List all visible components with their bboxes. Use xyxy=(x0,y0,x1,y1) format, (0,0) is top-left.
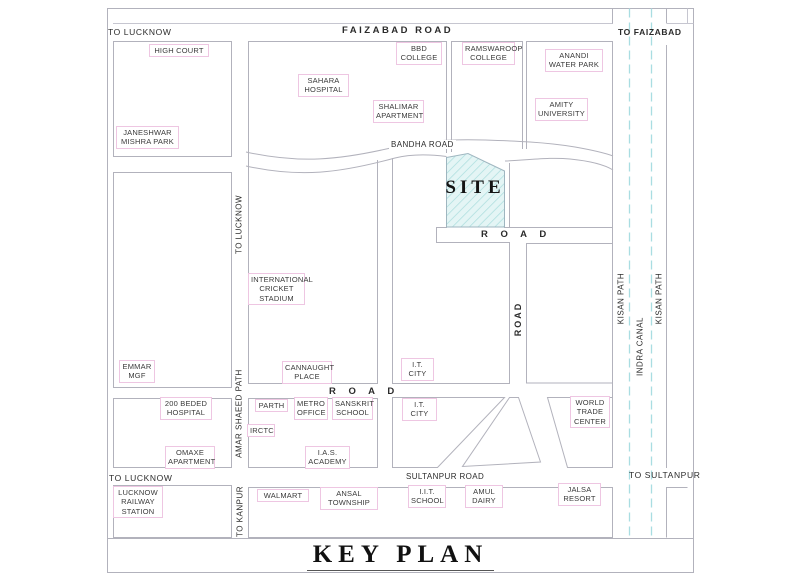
road-label-to-faizabad: TO FAIZABAD xyxy=(618,27,682,37)
road-label-indra-canal: INDRA CANAL xyxy=(636,287,645,407)
block-east xyxy=(527,244,613,384)
road-label-bandha-road: BANDHA ROAD xyxy=(389,140,456,149)
road-label-to-lucknow-vertical: TO LUCKNOW xyxy=(235,165,244,285)
label-cannaught-place: CANNAUGHT PLACE xyxy=(282,361,332,384)
page-title: KEY PLAN xyxy=(307,541,495,571)
label-world-trade-center: WORLD TRADE CENTER xyxy=(570,396,610,428)
label-sanskrit-school: SANSKRIT SCHOOL xyxy=(332,397,373,420)
label-irctc: IRCTC xyxy=(247,424,275,437)
label-ansal-township: ANSAL TOWNSHIP xyxy=(320,487,378,510)
faizabad-road-edge xyxy=(113,9,694,24)
label-jalsa-resort: JALSA RESORT xyxy=(558,483,601,506)
road-label-kisan-path-west: KISAN PATH xyxy=(617,239,626,359)
label-omaxe-apartment: OMAXE APARTMENT xyxy=(165,446,215,469)
block-cricket-stadium xyxy=(249,160,378,384)
block-emmar xyxy=(114,173,232,388)
label-international-cricket-stadium: INTERNATIONAL CRICKET STADIUM xyxy=(248,273,305,305)
site-label: SITE xyxy=(444,177,506,199)
kisan-path-east-edge xyxy=(667,9,688,538)
label-sahara-hospital: SAHARA HOSPITAL xyxy=(298,74,349,97)
label-shalimar-apartment: SHALIMAR APARTMENT xyxy=(373,100,424,123)
label-ramswaroop-college: RAMSWAROOP COLLEGE xyxy=(462,42,515,65)
road-label-sultanpur-road: SULTANPUR ROAD xyxy=(406,472,484,481)
label-janeshwar-mishra-park: JANESHWAR MISHRA PARK xyxy=(116,126,179,149)
label-parth: PARTH xyxy=(255,399,288,412)
road-label-road-vertical: ROAD xyxy=(513,259,523,379)
label-emmar-mgf: EMMAR MGF xyxy=(119,360,155,383)
road-label-kisan-path-east: KISAN PATH xyxy=(655,239,664,359)
label-amity-university: AMITY UNIVERSITY xyxy=(535,98,588,121)
road-label-road-mid: R O A D xyxy=(329,386,399,397)
road-label-faizabad-road: FAIZABAD ROAD xyxy=(342,25,453,36)
label-ias-academy: I.A.S. ACADEMY xyxy=(305,446,350,469)
label-walmart: WALMART xyxy=(257,489,309,502)
label-bbd-college: BBD COLLEGE xyxy=(396,42,442,65)
block-east-of-site xyxy=(504,163,613,228)
label-it-city-lower: I.T. CITY xyxy=(402,398,437,421)
label-high-court: HIGH COURT xyxy=(149,44,209,57)
label-it-city-upper: I.T. CITY xyxy=(401,358,434,381)
label-200-beded-hospital: 200 BEDED HOSPITAL xyxy=(160,397,212,420)
road-label-road-site: R O A D xyxy=(481,229,551,240)
road-label-to-sultanpur: TO SULTANPUR xyxy=(629,470,700,480)
label-iit-school: I.I.T. SCHOOL xyxy=(408,485,446,508)
label-lucknow-railway-station: LUCKNOW RAILWAY STATION xyxy=(113,486,163,518)
road-label-to-lucknow-top: TO LUCKNOW xyxy=(108,27,171,37)
label-anandi-water-park: ANANDI WATER PARK xyxy=(545,49,603,72)
title-bar: KEY PLAN xyxy=(107,538,694,573)
label-metro-office: METRO OFFICE xyxy=(294,397,328,420)
key-plan-map: TO LUCKNOW FAIZABAD ROAD TO FAIZABAD BAN… xyxy=(0,0,800,578)
label-amul-dairy: AMUL DAIRY xyxy=(465,485,503,508)
road-label-to-lucknow-bottom: TO LUCKNOW xyxy=(109,473,172,483)
bandha-road-south-edge-east xyxy=(505,158,613,170)
block-wedge xyxy=(463,398,541,467)
